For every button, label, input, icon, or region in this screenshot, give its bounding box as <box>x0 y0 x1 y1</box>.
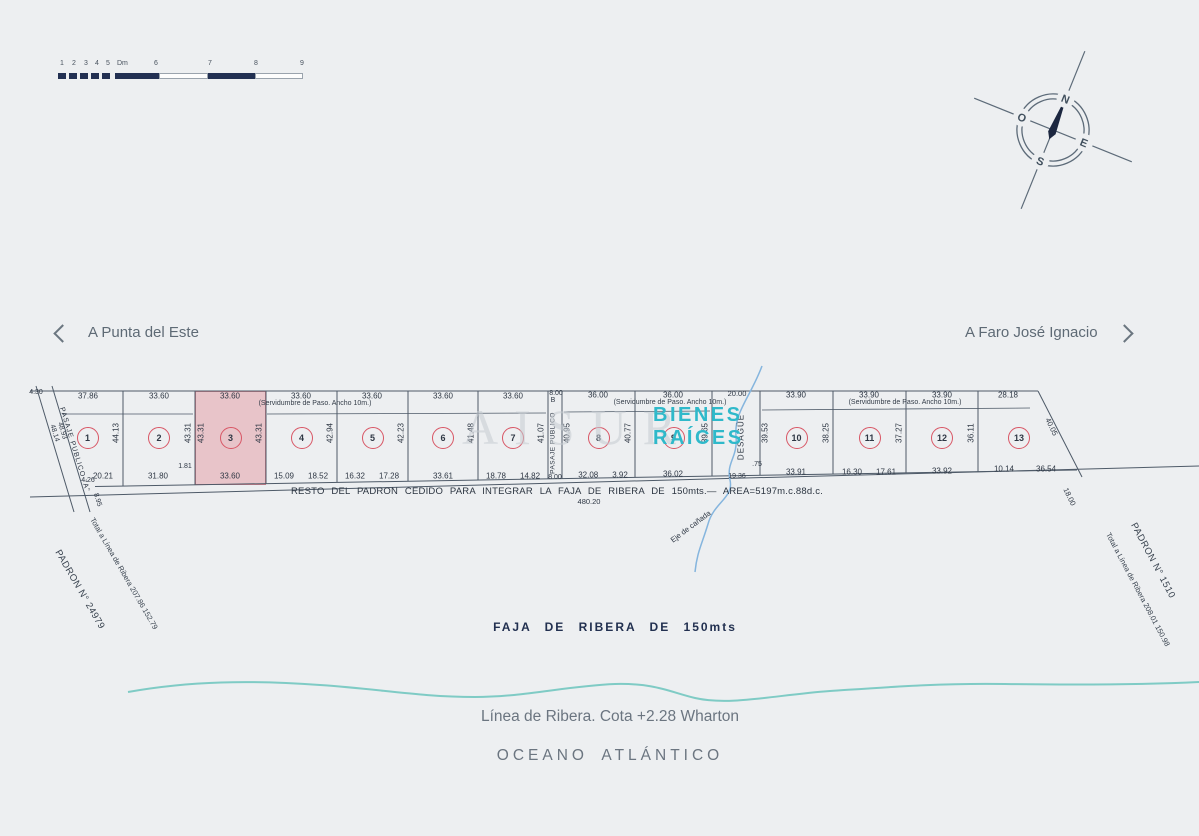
scale-tick: 5 <box>106 60 110 67</box>
compass-north: N <box>1059 93 1071 107</box>
lot-number-badge: 10 <box>786 427 808 449</box>
scale-tick: 9 <box>300 60 304 67</box>
eje-canada-label: Eje de cañada <box>669 509 712 544</box>
scale-tick: 8 <box>254 60 258 67</box>
lot-13-bottom: 10.1436.54 <box>994 466 1056 475</box>
corner-measure: 1.81 <box>178 463 192 471</box>
scale-segment <box>159 73 208 79</box>
nav-punta-del-este[interactable]: A Punta del Este <box>88 324 199 341</box>
lot-13-top: 28.18 <box>998 392 1018 401</box>
lot-9-side: 39.65 <box>702 423 711 443</box>
lot-8-side-right: 40.77 <box>625 423 634 443</box>
shoreline <box>128 682 1199 701</box>
lot-7-bottom: 18.7814.82 <box>486 473 540 482</box>
lot-10-bottom: 33.91 <box>786 469 806 478</box>
faja-ribera-label: FAJA DE RIBERA DE 150mts <box>455 620 775 634</box>
lot-number-badge: 5 <box>362 427 384 449</box>
lot-12-bottom: 33.92 <box>932 468 952 477</box>
desague-extra: .75 <box>752 461 762 469</box>
padron-left-name: PADRON N° 24979 <box>52 548 106 631</box>
lot-1-side: 44.13 <box>113 423 122 443</box>
pasaje-b-bottom: 8.00 <box>548 474 562 482</box>
servidumbre-note: (Servidumbre de Paso. Ancho 10m.) <box>259 400 372 408</box>
scale-tick: 2 <box>72 60 76 67</box>
lot-3-side-left: 43.31 <box>198 423 207 443</box>
lot-11-bottom: 16.3017.61 <box>842 469 896 478</box>
lot-11-side: 37.27 <box>896 423 905 443</box>
lot-5-bottom: 16.3217.28 <box>345 473 399 482</box>
lot-8-bottom: 32.083.92 <box>578 472 628 481</box>
lot-3-bottom: 33.60 <box>220 473 240 482</box>
lot-9-bottom: 36.02 <box>663 471 683 480</box>
lot-number-badge: 4 <box>291 427 313 449</box>
lot-number-badge: 2 <box>148 427 170 449</box>
servidumbre-note: (Servidumbre de Paso. Ancho 10m.) <box>849 399 962 407</box>
lot-10-side-left: 39.53 <box>762 423 771 443</box>
desague-label: DESAGÜE <box>738 414 747 460</box>
measure: 4.30 <box>29 389 43 397</box>
lot-number-badge: 1 <box>77 427 99 449</box>
lot-10-side-right: 38.25 <box>823 423 832 443</box>
lot-6-top: 33.60 <box>433 393 453 402</box>
compass-needle <box>1046 93 1071 141</box>
corner-measure: 8.95 <box>91 492 102 507</box>
desague-top: 20.00 <box>728 390 747 398</box>
lot-number-badge: 12 <box>931 427 953 449</box>
scale-segment <box>102 73 110 79</box>
scale-tick: 4 <box>95 60 99 67</box>
scale-segment <box>255 73 303 79</box>
compass-east: E <box>1078 137 1089 151</box>
lot-number-badge: 7 <box>502 427 524 449</box>
lot-4-bottom: 15.0918.52 <box>274 473 328 482</box>
scale-bar: 1 2 3 4 5 Dm 6 7 8 9 <box>56 60 316 86</box>
servidumbre-note: (Servidumbre de Paso. Ancho 10m.) <box>614 399 727 407</box>
scale-tick: Dm <box>117 60 128 67</box>
lot-3-side-right: 43.31 <box>256 423 265 443</box>
scale-tick: 1 <box>60 60 64 67</box>
measure-beyond: 18.00 <box>1061 487 1077 507</box>
lot-2-bottom: 31.80 <box>148 473 168 482</box>
lot-number-badge: 9 <box>663 427 685 449</box>
lot-number-badge: 11 <box>859 427 881 449</box>
lot-number-badge: 3 <box>220 427 242 449</box>
lot-10-top: 33.90 <box>786 392 806 401</box>
survey-plan-canvas: 1 2 3 4 5 Dm 6 7 8 9 A Punta del Este A … <box>0 0 1199 836</box>
linea-ribera-label: Línea de Ribera. Cota +2.28 Wharton <box>400 708 820 726</box>
scale-segment <box>91 73 99 79</box>
lot-number-badge: 8 <box>588 427 610 449</box>
scale-segment <box>58 73 66 79</box>
lot-6-bottom: 33.61 <box>433 473 453 482</box>
corner-measure: 4.26 <box>81 477 95 485</box>
resto-padron-note: RESTO DEL PADRON CEDIDO PARA INTEGRAR LA… <box>291 487 823 497</box>
lot-3-top: 33.60 <box>220 393 240 402</box>
scale-tick: 6 <box>154 60 158 67</box>
pasaje-b-label: PASAJE PUBLICO <box>549 412 556 474</box>
scale-segment <box>208 73 255 79</box>
scale-segment <box>115 73 159 79</box>
compass-rose: N E S O <box>942 19 1163 240</box>
lot-number-badge: 6 <box>432 427 454 449</box>
chevron-left-icon[interactable] <box>53 324 71 342</box>
lot-1-bottom: 20.21 <box>93 473 113 482</box>
chevron-right-icon[interactable] <box>1115 324 1133 342</box>
nav-faro-jose-ignacio[interactable]: A Faro José Ignacio <box>965 324 1098 341</box>
lot-8-side-left: 40.95 <box>564 423 573 443</box>
pasaje-b-letter: B <box>551 397 556 405</box>
lot-4-side: 42.94 <box>327 423 336 443</box>
desague-bottom: 19.36 <box>728 473 746 481</box>
oceano-atlantico-label: OCEANO ATLÁNTICO <box>400 747 820 765</box>
compass-south: S <box>1034 155 1045 169</box>
scale-segment <box>69 73 77 79</box>
lot-12-side: 36.11 <box>968 423 977 442</box>
lot-2-top: 33.60 <box>149 393 169 402</box>
lot-1-top: 37.86 <box>78 393 98 402</box>
lot-7-top: 33.60 <box>503 393 523 402</box>
lot-2-side: 43.31 <box>185 423 194 443</box>
scale-segment <box>80 73 88 79</box>
scale-tick: 3 <box>84 60 88 67</box>
lot-6-side: 41.48 <box>468 423 477 443</box>
lot-8-top: 36.00 <box>588 392 608 401</box>
scale-tick: 7 <box>208 60 212 67</box>
lot-7-side: 41.07 <box>538 423 547 443</box>
compass-west: O <box>1015 111 1028 125</box>
lot-5-side: 42.23 <box>398 423 407 443</box>
lot-number-badge: 13 <box>1008 427 1030 449</box>
resto-total: 480.20 <box>578 498 601 506</box>
